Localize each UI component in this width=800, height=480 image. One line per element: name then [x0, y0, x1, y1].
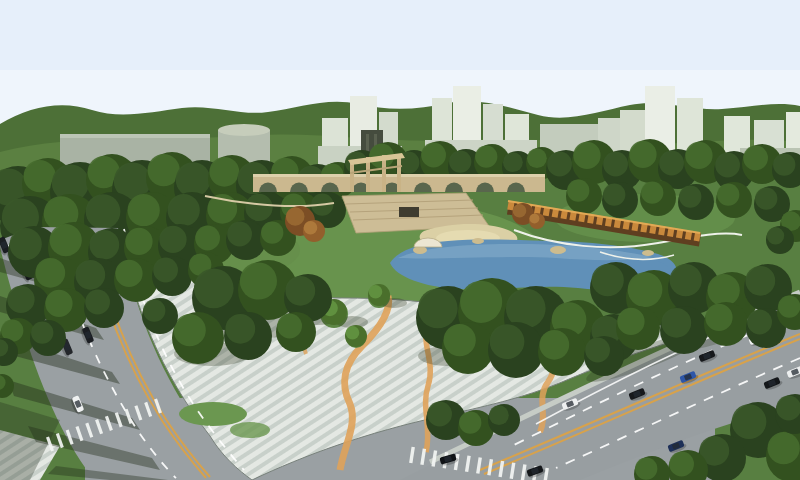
scene-canvas	[0, 0, 800, 480]
rock	[472, 238, 484, 244]
rock	[642, 250, 654, 256]
trees-east-strip	[590, 262, 800, 354]
building-cylinder-roof	[218, 124, 270, 136]
building-slab-roof	[60, 134, 210, 138]
rock	[550, 246, 566, 254]
plaza-grass	[179, 402, 247, 426]
terrace-doorway	[399, 207, 419, 217]
gateway-post	[397, 158, 401, 192]
park-aerial-render	[0, 0, 800, 480]
plaza-grass	[230, 422, 270, 438]
scene-layers	[0, 0, 800, 480]
